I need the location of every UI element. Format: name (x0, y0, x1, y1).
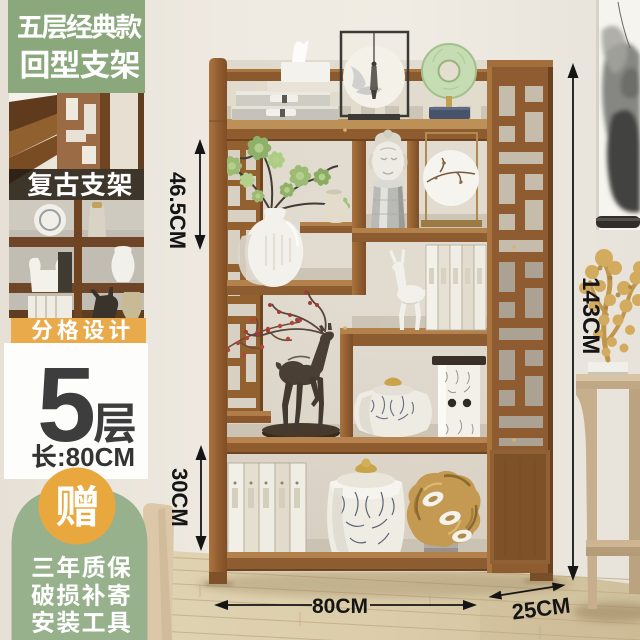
svg-text:30CM: 30CM (167, 468, 192, 527)
svg-text::80CM: :80CM (57, 442, 135, 472)
svg-text:46.5CM: 46.5CM (165, 172, 190, 249)
svg-text:143CM: 143CM (577, 277, 604, 354)
svg-text:80CM: 80CM (312, 595, 368, 618)
